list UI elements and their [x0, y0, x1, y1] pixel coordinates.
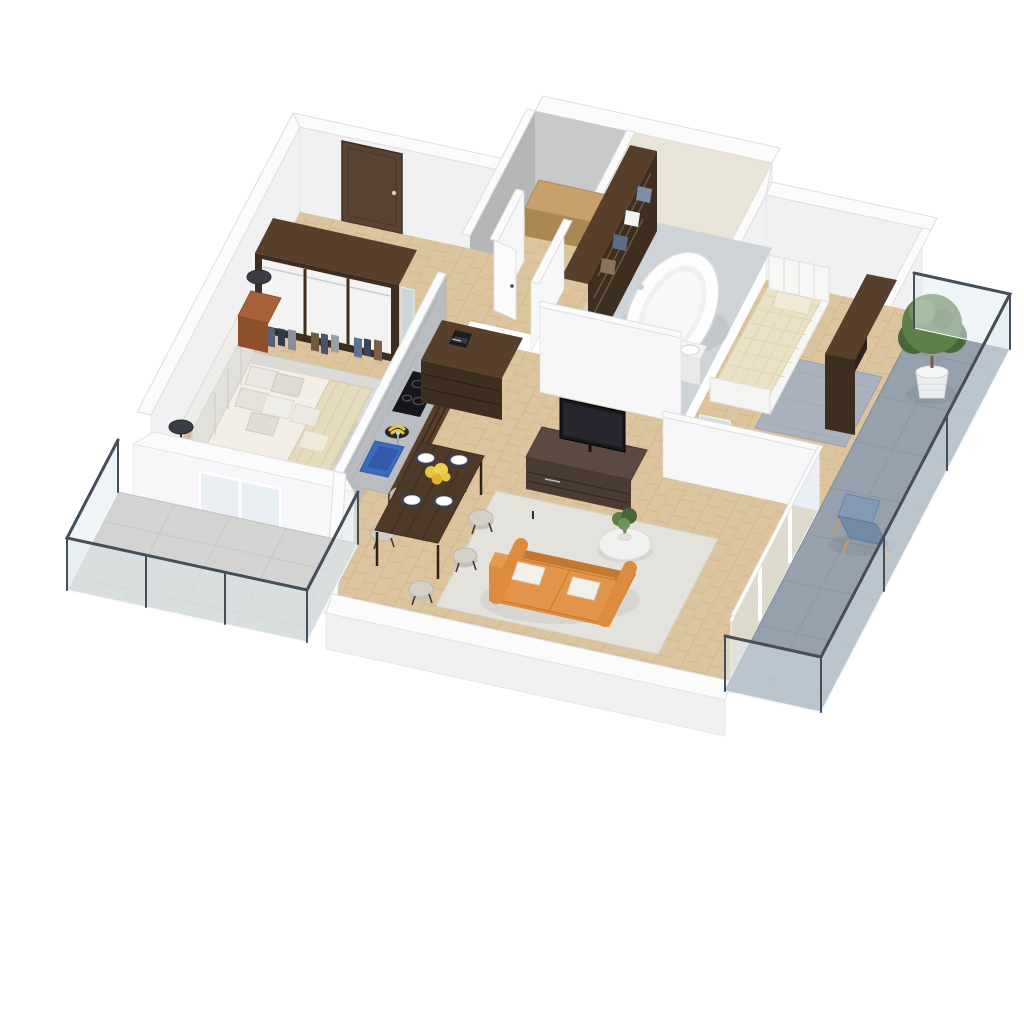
wardrobe2-south-face [825, 354, 855, 435]
towel-stack-tan [600, 258, 616, 275]
table-lamp [169, 420, 193, 434]
door-handle [510, 284, 514, 288]
door-handle [392, 191, 396, 195]
interior-door-leaf [494, 240, 516, 320]
floor-plan-scene [0, 0, 1024, 1024]
floor-plan-render [0, 0, 1024, 1024]
entry-door [342, 141, 402, 234]
table-lamp [247, 270, 271, 284]
towel-stack-navy [612, 234, 628, 251]
towel-stack-white [624, 210, 640, 227]
towel-stack-blue [636, 186, 652, 203]
tub-faucet [638, 284, 644, 290]
